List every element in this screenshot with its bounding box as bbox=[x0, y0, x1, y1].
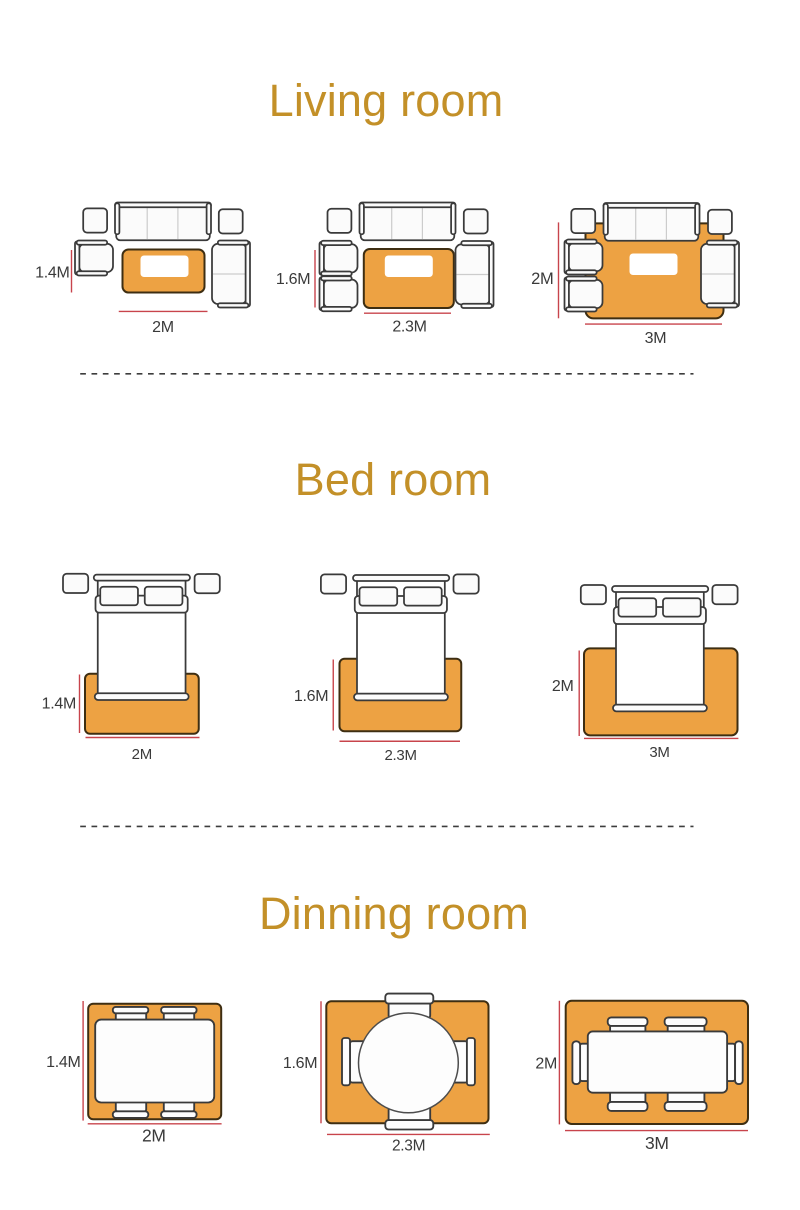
svg-text:2M: 2M bbox=[142, 1126, 166, 1146]
svg-text:2M: 2M bbox=[132, 746, 152, 763]
svg-text:1.4M: 1.4M bbox=[35, 265, 69, 282]
svg-text:1.4M: 1.4M bbox=[42, 696, 76, 713]
svg-text:2.3M: 2.3M bbox=[392, 1138, 425, 1155]
svg-text:3M: 3M bbox=[645, 330, 667, 347]
svg-text:2.3M: 2.3M bbox=[392, 319, 426, 336]
svg-text:3M: 3M bbox=[649, 744, 669, 761]
svg-text:2M: 2M bbox=[552, 678, 574, 695]
svg-text:2M: 2M bbox=[152, 319, 174, 336]
svg-text:Living room: Living room bbox=[269, 75, 504, 126]
svg-text:1.4M: 1.4M bbox=[46, 1054, 80, 1071]
svg-text:1.6M: 1.6M bbox=[294, 688, 328, 705]
svg-text:1.6M: 1.6M bbox=[276, 271, 310, 288]
svg-text:2M: 2M bbox=[531, 270, 553, 288]
svg-text:1.6M: 1.6M bbox=[283, 1055, 317, 1072]
svg-text:Bed room: Bed room bbox=[295, 454, 492, 505]
svg-text:3M: 3M bbox=[645, 1133, 669, 1153]
svg-text:Dinning room: Dinning room bbox=[259, 888, 529, 939]
svg-text:2.3M: 2.3M bbox=[385, 747, 417, 764]
svg-text:2M: 2M bbox=[535, 1056, 557, 1073]
